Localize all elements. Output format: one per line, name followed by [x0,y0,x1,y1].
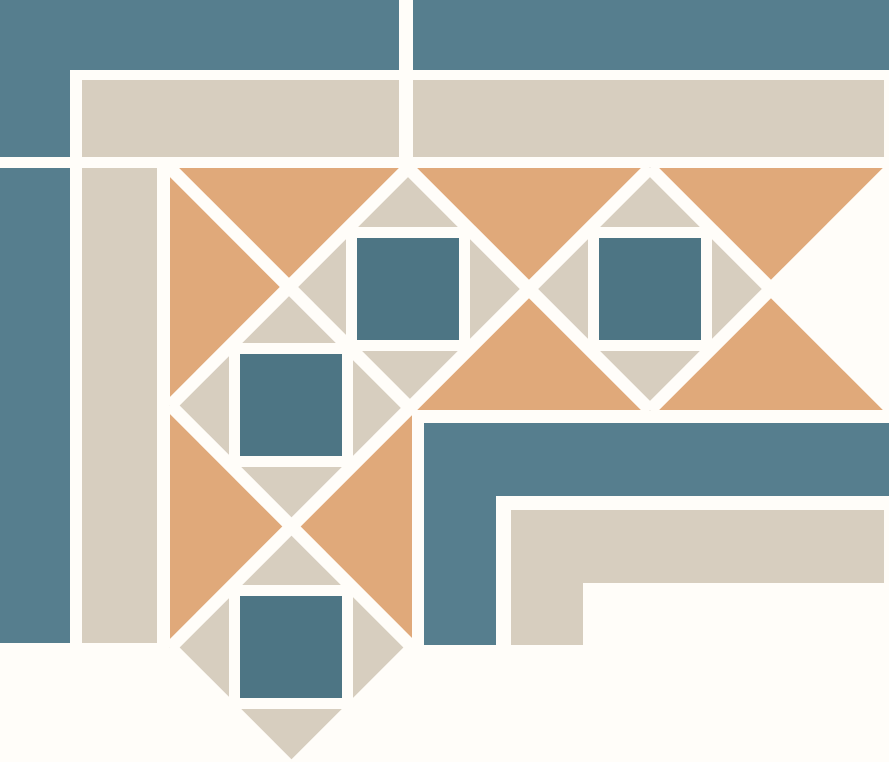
teal-inset-square-top-2 [599,238,701,340]
tile-pattern-canvas [0,0,889,762]
teal-outer-band-top-right [413,0,889,70]
cream-outer-band-top-left [82,80,399,157]
teal-inset-square-top-1 [357,238,459,340]
cream-outer-strip-left [82,168,157,643]
cream-outer-band-top-right [413,80,884,157]
teal-outer-corner-tile [0,0,70,157]
cream-inner-band-vertical [511,510,583,645]
teal-inner-band-vertical [424,423,496,645]
grout-vertical-top-seam [399,0,413,168]
teal-inset-square-left-2 [240,596,342,698]
tile-border-corner-pattern [0,0,889,762]
teal-inset-square-left-1 [240,354,342,456]
teal-outer-strip-left [0,168,70,643]
